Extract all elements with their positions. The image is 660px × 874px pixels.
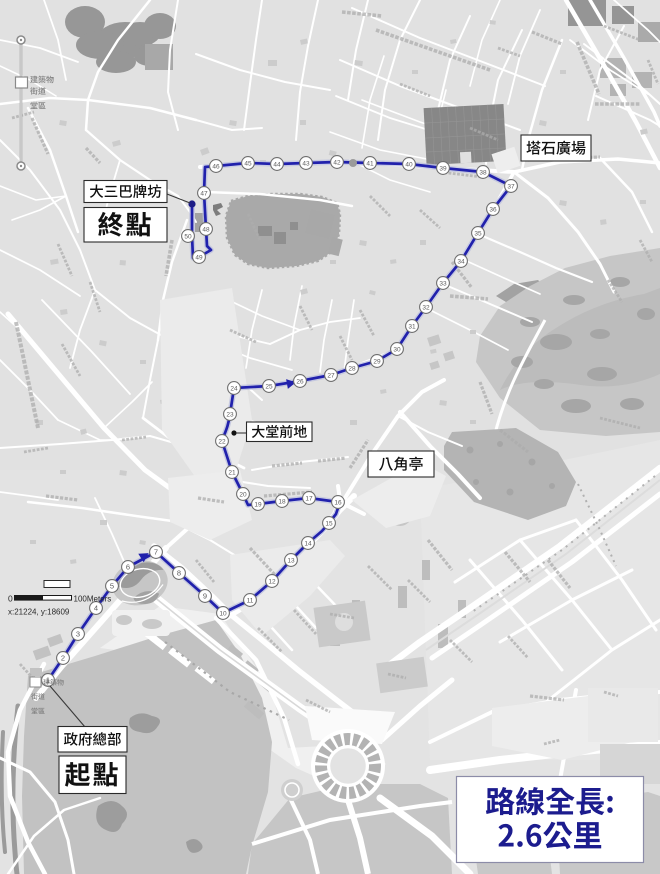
svg-text:6: 6 — [126, 562, 130, 571]
svg-text:30: 30 — [393, 346, 401, 353]
svg-text:33: 33 — [439, 280, 447, 287]
svg-text:15: 15 — [325, 520, 333, 527]
svg-text:44: 44 — [273, 161, 281, 168]
svg-text:42: 42 — [333, 159, 341, 166]
svg-text:43: 43 — [302, 160, 310, 167]
svg-text:49: 49 — [195, 254, 203, 261]
svg-text:45: 45 — [244, 160, 252, 167]
svg-text:14: 14 — [304, 540, 312, 547]
svg-text:46: 46 — [212, 163, 220, 170]
svg-text:17: 17 — [305, 495, 313, 502]
svg-text:0: 0 — [8, 594, 13, 604]
svg-text:5: 5 — [110, 581, 114, 590]
svg-text:34: 34 — [457, 258, 465, 265]
svg-text:25: 25 — [265, 383, 273, 390]
svg-text:10: 10 — [219, 610, 227, 617]
svg-text:22: 22 — [218, 438, 226, 445]
svg-text:x:21224, y:18609: x:21224, y:18609 — [8, 608, 70, 617]
svg-text:40: 40 — [405, 161, 413, 168]
svg-text:35: 35 — [474, 230, 482, 237]
svg-text:39: 39 — [439, 165, 447, 172]
svg-text:9: 9 — [203, 591, 207, 600]
svg-text:19: 19 — [254, 501, 262, 508]
svg-text:27: 27 — [327, 372, 335, 379]
svg-text:31: 31 — [408, 323, 416, 330]
svg-text:50: 50 — [184, 233, 192, 240]
svg-text:47: 47 — [200, 190, 208, 197]
svg-text:38: 38 — [479, 169, 487, 176]
svg-text:23: 23 — [226, 411, 234, 418]
svg-text:24: 24 — [230, 385, 238, 392]
svg-text:18: 18 — [278, 498, 286, 505]
svg-text:29: 29 — [373, 358, 381, 365]
svg-text:100Meters: 100Meters — [74, 595, 112, 604]
svg-text:21: 21 — [228, 469, 236, 476]
svg-text:3: 3 — [76, 629, 80, 638]
svg-text:11: 11 — [247, 597, 254, 604]
svg-text:48: 48 — [202, 226, 210, 233]
svg-text:16: 16 — [334, 499, 342, 506]
svg-text:13: 13 — [287, 557, 295, 564]
svg-text:26: 26 — [296, 378, 304, 385]
svg-text:32: 32 — [422, 304, 430, 311]
svg-text:12: 12 — [268, 578, 276, 585]
svg-text:41: 41 — [366, 160, 374, 167]
svg-text:8: 8 — [177, 568, 181, 577]
svg-text:28: 28 — [348, 365, 356, 372]
svg-text:4: 4 — [94, 603, 98, 612]
svg-text:7: 7 — [154, 547, 158, 556]
svg-text:36: 36 — [489, 206, 497, 213]
svg-text:20: 20 — [239, 491, 247, 498]
svg-text:37: 37 — [507, 183, 515, 190]
svg-text:2: 2 — [61, 653, 65, 662]
